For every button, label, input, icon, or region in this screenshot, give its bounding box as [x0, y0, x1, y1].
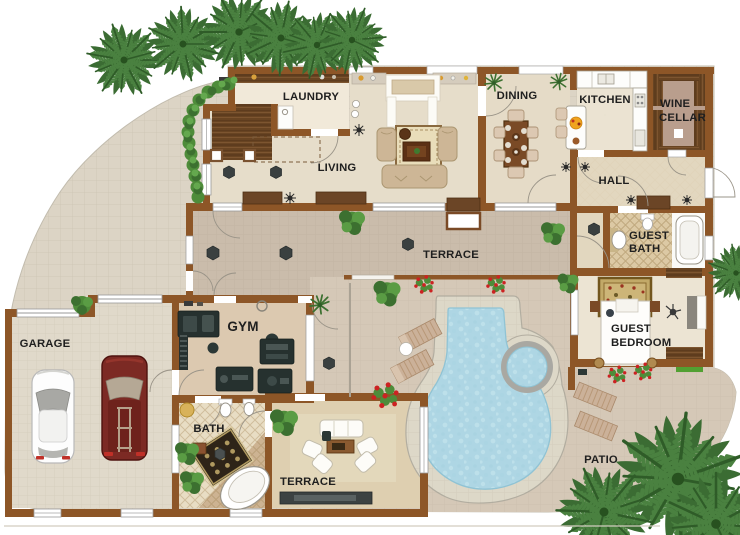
- svg-text:GUEST: GUEST: [611, 323, 651, 335]
- svg-text:GARAGE: GARAGE: [20, 338, 71, 350]
- svg-text:TERRACE: TERRACE: [280, 476, 336, 488]
- svg-text:WINE: WINE: [660, 98, 691, 110]
- svg-text:GUEST: GUEST: [629, 230, 669, 242]
- svg-text:PATIO: PATIO: [584, 454, 618, 466]
- svg-text:TERRACE: TERRACE: [423, 249, 479, 261]
- svg-text:BEDROOM: BEDROOM: [611, 337, 671, 349]
- svg-text:CELLAR: CELLAR: [659, 112, 706, 124]
- svg-text:BATH: BATH: [629, 243, 660, 255]
- svg-text:BATH: BATH: [193, 423, 224, 435]
- svg-text:DINING: DINING: [497, 90, 538, 102]
- svg-text:LAUNDRY: LAUNDRY: [283, 91, 339, 103]
- svg-text:GYM: GYM: [227, 319, 258, 334]
- svg-text:HALL: HALL: [599, 175, 630, 187]
- svg-text:LIVING: LIVING: [318, 162, 357, 174]
- svg-text:KITCHEN: KITCHEN: [579, 94, 631, 106]
